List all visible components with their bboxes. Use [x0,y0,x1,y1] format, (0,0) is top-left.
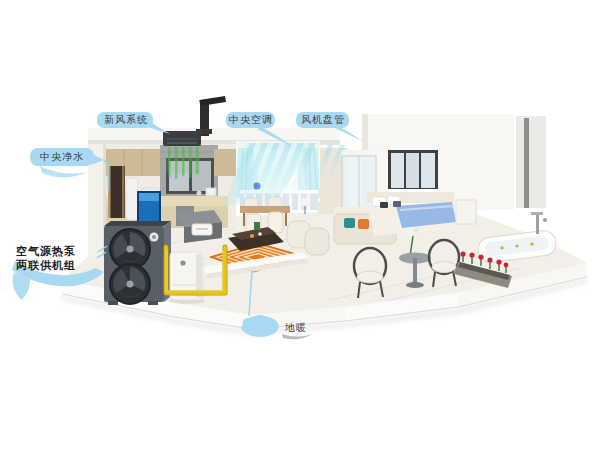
buffer-tank [169,252,205,304]
callout-floor-heating-label: 地暖 [281,320,311,335]
callout-central-ac-label: 中央空调 [227,112,275,127]
callout-fan-coil-label: 风机盘管 [297,112,349,127]
house-cutaway-illustration [0,0,600,450]
heat-pump-label-line1: 空气源热泵 [16,245,76,258]
callout-fresh-air-label: 新风系统 [99,112,153,127]
callout-heat-pump-label: 空气源热泵 两联供机组 [16,245,76,273]
wall-controller [192,224,212,235]
annotated-house-hvac-diagram: 新风系统 中央空调 风机盘管 中央净水 空气源热泵 两联供机组 地暖 [0,0,600,450]
heat-pump-label-line2: 两联供机组 [16,259,76,272]
outdoor-heat-pump-unit [104,221,171,305]
callout-water-purification-label: 中央净水 [32,149,92,164]
